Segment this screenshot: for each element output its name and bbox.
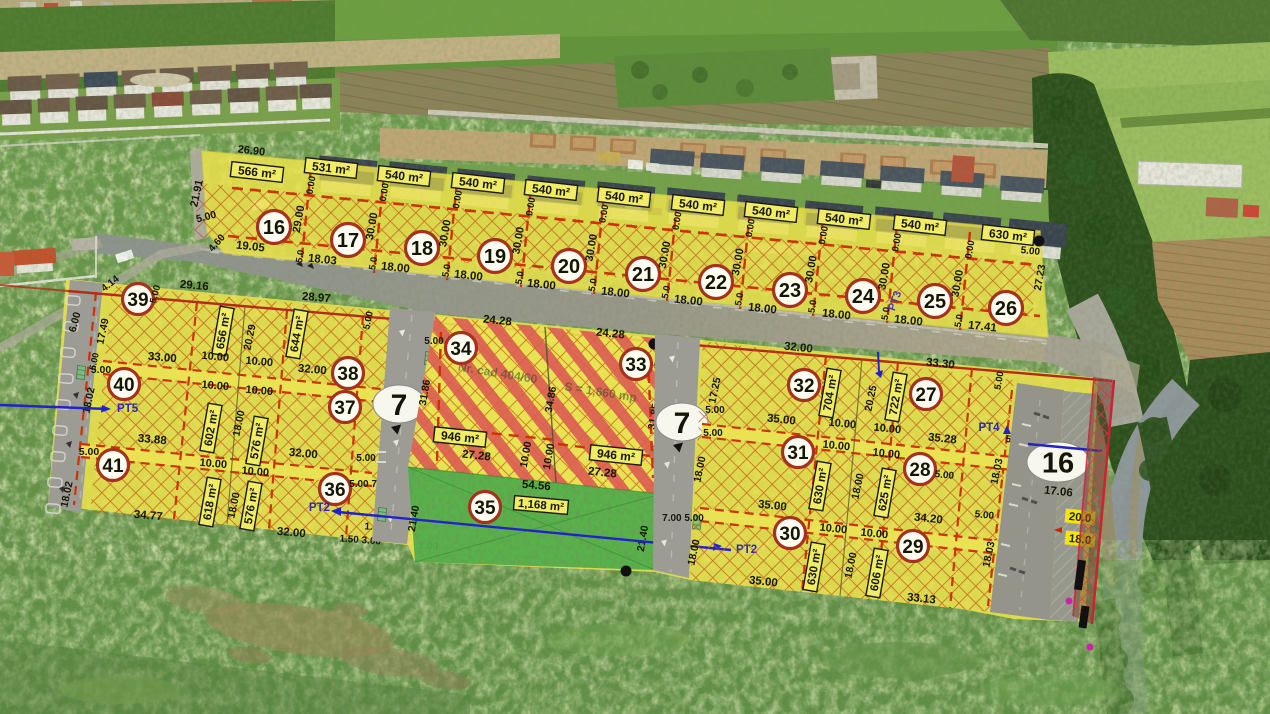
svg-text:36: 36 [324,480,345,501]
svg-text:34: 34 [450,339,472,360]
svg-text:16: 16 [263,217,285,239]
svg-text:31: 31 [787,443,809,464]
svg-text:27: 27 [915,385,936,406]
svg-text:35: 35 [474,498,496,519]
svg-text:32.00: 32.00 [297,363,327,377]
svg-text:26: 26 [995,298,1017,320]
svg-text:5.0: 5.0 [806,299,819,314]
svg-text:30: 30 [779,524,800,545]
svg-text:17: 17 [337,230,359,252]
svg-text:10.00: 10.00 [245,384,273,398]
svg-text:5.0: 5.0 [587,278,600,293]
svg-text:5.0: 5.0 [514,270,527,285]
svg-text:19: 19 [484,246,506,268]
svg-text:5.0: 5.0 [660,285,673,300]
svg-text:5.00: 5.00 [91,364,112,376]
svg-text:5.0: 5.0 [440,263,453,278]
svg-text:10.00: 10.00 [201,379,229,393]
svg-text:5.00: 5.00 [934,469,955,482]
svg-text:5.0: 5.0 [733,292,746,307]
svg-text:10.00: 10.00 [201,350,229,364]
svg-text:18: 18 [411,238,433,260]
svg-text:5.00: 5.00 [703,428,723,439]
svg-text:25: 25 [924,291,946,313]
svg-text:40: 40 [113,375,134,396]
svg-text:33: 33 [625,355,646,376]
svg-text:21: 21 [632,264,654,286]
svg-text:33.00: 33.00 [147,351,177,365]
svg-text:5.00: 5.00 [705,405,725,416]
svg-text:29: 29 [902,537,923,558]
svg-text:5.00: 5.00 [1020,245,1041,258]
svg-text:5.00: 5.00 [974,509,995,522]
svg-text:5.00: 5.00 [79,446,100,458]
svg-text:5.0: 5.0 [953,313,966,328]
svg-text:28: 28 [909,460,930,481]
svg-text:39: 39 [127,290,148,311]
svg-text:28.97: 28.97 [301,291,331,305]
svg-text:23: 23 [779,280,801,302]
svg-text:34.77: 34.77 [133,509,163,523]
svg-text:38: 38 [337,364,358,385]
svg-text:PT2: PT2 [309,502,330,514]
svg-text:PT5: PT5 [117,403,139,415]
svg-text:10.00: 10.00 [245,355,273,369]
svg-text:29.16: 29.16 [179,279,209,293]
svg-text:32.00: 32.00 [276,526,306,540]
svg-text:32.00: 32.00 [288,447,318,461]
svg-text:7.00 5.00: 7.00 5.00 [662,513,704,524]
svg-text:37: 37 [334,398,355,419]
svg-text:33.88: 33.88 [137,433,167,448]
svg-text:54.56: 54.56 [521,479,551,493]
svg-text:PT4: PT4 [978,422,1000,434]
svg-text:7: 7 [391,389,408,422]
svg-text:10.00: 10.00 [199,457,227,471]
svg-text:22: 22 [705,272,727,294]
svg-text:16: 16 [1042,447,1074,479]
svg-text:32: 32 [793,376,814,397]
svg-text:20: 20 [558,256,580,278]
svg-text:41: 41 [102,456,124,477]
svg-text:5.0: 5.0 [367,256,380,271]
svg-text:24: 24 [852,286,875,308]
svg-text:10.00: 10.00 [241,465,269,479]
svg-text:5.00: 5.00 [356,453,376,464]
svg-text:5.00: 5.00 [424,336,444,347]
svg-text:7: 7 [674,407,691,440]
